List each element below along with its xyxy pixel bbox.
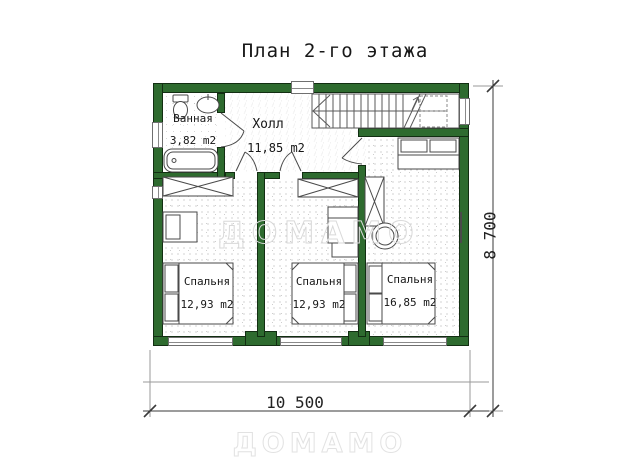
bedroom-left-name: Спальня [177,275,237,288]
mattress [179,263,233,324]
bedroom-middle-area: 12,93 m2 [289,298,349,311]
hall-name: Холл [238,117,298,132]
bed-left [163,263,233,324]
pillow [430,140,456,152]
bathroom-name: Ванная [163,112,223,125]
bedroom-right-door [342,138,362,164]
desk-left-chair [166,215,180,239]
mattress [292,263,344,324]
toilet-tank [173,95,188,102]
dimension-height-label: 8 700 [481,201,500,271]
bedroom-left-area: 12,93 m2 [177,298,237,311]
dim-ticks [144,80,499,417]
pillow [401,140,427,152]
bedroom-middle-name: Спальня [289,275,349,288]
bathroom-area: 3,82 m2 [163,134,223,147]
dimension-width-label: 10 500 [255,393,335,412]
dimension-main [143,80,499,417]
bathroom-fixtures [164,94,219,172]
double-bed-right [398,138,459,169]
bedroom-right-area: 16,85 m2 [380,296,440,309]
round-stool-inner [376,227,394,245]
hall-area: 11,85 m2 [236,141,316,155]
bathtub-drain [172,159,176,163]
dresser-middle [328,207,358,243]
bed-middle [292,263,358,324]
bedroom-right-name: Спальня [380,273,440,286]
nightstand-middle [332,243,358,257]
floor-plan-page: План 2-го этажа [0,0,630,470]
stairs [312,94,459,128]
